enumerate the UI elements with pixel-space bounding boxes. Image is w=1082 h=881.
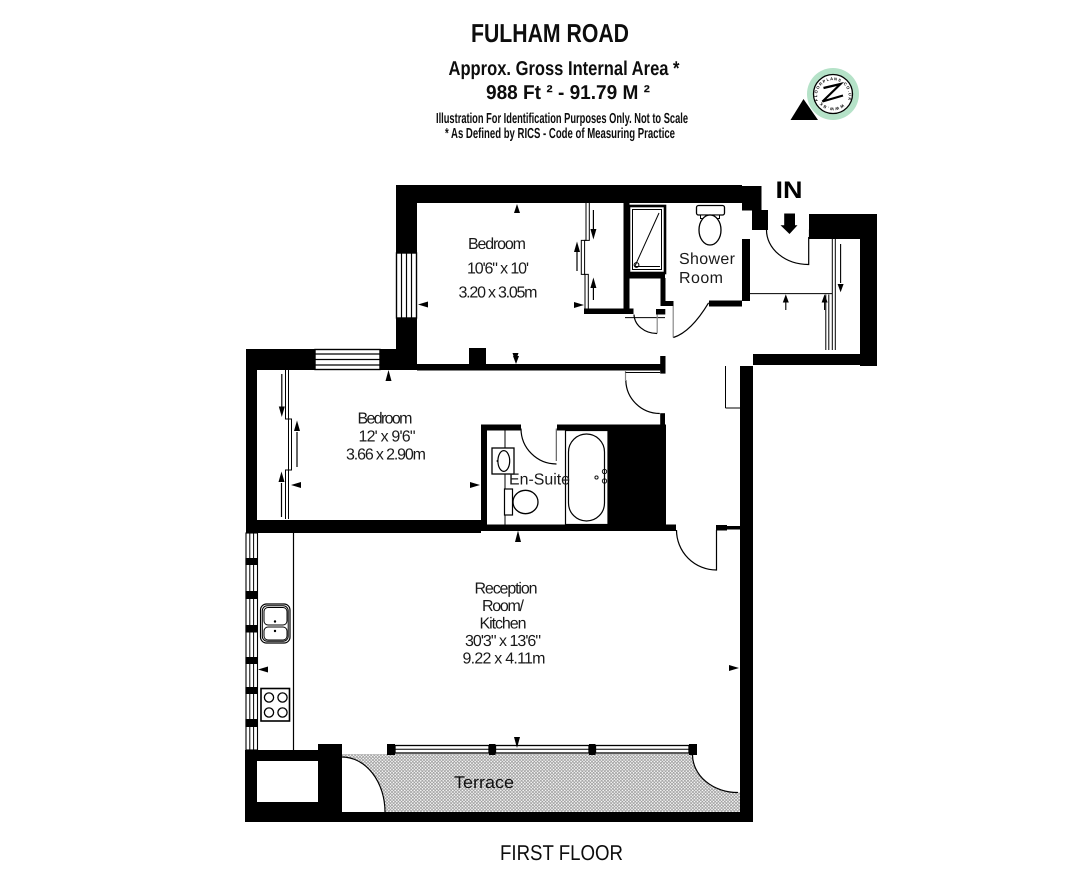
svg-text:30'3" x 13'6": 30'3" x 13'6" xyxy=(465,633,541,650)
svg-text:* As Defined by RICS - Code of: * As Defined by RICS - Code of Measuring… xyxy=(445,126,675,142)
svg-text:3.66 x 2.90m: 3.66 x 2.90m xyxy=(346,447,426,464)
svg-text:3.20 x 3.05m: 3.20 x 3.05m xyxy=(459,285,538,302)
svg-text:IN: IN xyxy=(776,177,803,204)
svg-text:9.22 x 4.11m: 9.22 x 4.11m xyxy=(463,651,546,668)
svg-text:Bedroom: Bedroom xyxy=(358,411,413,428)
svg-text:Kitchen: Kitchen xyxy=(480,616,527,633)
svg-text:Bedroom: Bedroom xyxy=(468,236,526,253)
svg-text:En-Suite: En-Suite xyxy=(509,472,570,489)
svg-text:Room: Room xyxy=(679,270,723,287)
svg-text:FIRST FLOOR: FIRST FLOOR xyxy=(500,841,623,865)
svg-text:Shower: Shower xyxy=(679,251,736,268)
svg-text:Reception: Reception xyxy=(475,581,538,598)
svg-text:Approx. Gross Internal Area *: Approx. Gross Internal Area * xyxy=(449,58,680,80)
svg-text:988 Ft ² - 91.79 M ²: 988 Ft ² - 91.79 M ² xyxy=(486,82,650,104)
svg-text:10'6" x 10': 10'6" x 10' xyxy=(467,261,529,278)
svg-text:12' x 9'6": 12' x 9'6" xyxy=(359,429,416,446)
svg-text:Room/: Room/ xyxy=(482,598,525,615)
svg-text:FULHAM ROAD: FULHAM ROAD xyxy=(471,18,629,48)
svg-text:Illustration For Identificatio: Illustration For Identification Purposes… xyxy=(436,111,688,127)
svg-text:Terrace: Terrace xyxy=(454,773,514,792)
